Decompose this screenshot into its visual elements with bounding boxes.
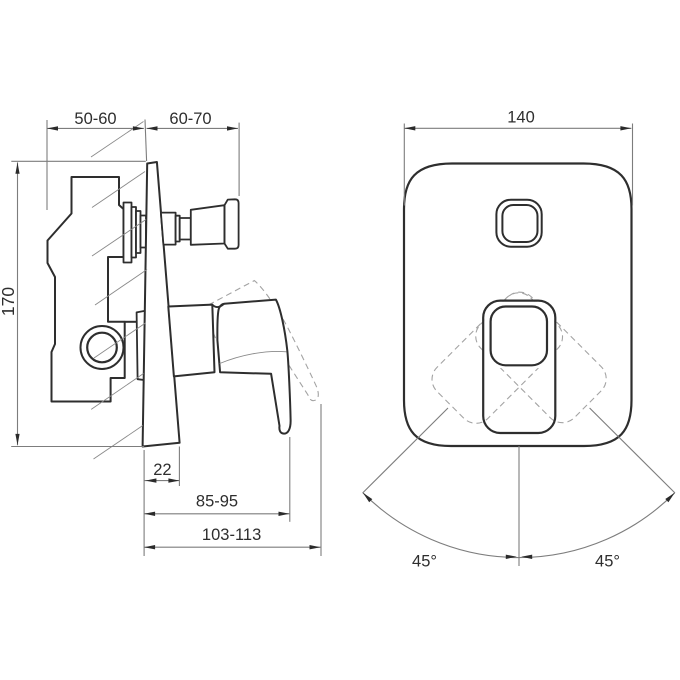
svg-text:50-60: 50-60 bbox=[74, 110, 116, 128]
svg-text:140: 140 bbox=[507, 109, 535, 127]
svg-text:85-95: 85-95 bbox=[196, 493, 238, 511]
svg-text:45°: 45° bbox=[595, 553, 620, 571]
svg-text:103-113: 103-113 bbox=[202, 526, 261, 544]
svg-text:22: 22 bbox=[153, 461, 171, 479]
svg-text:170: 170 bbox=[0, 287, 18, 316]
svg-text:45°: 45° bbox=[412, 553, 437, 571]
svg-text:60-70: 60-70 bbox=[169, 110, 211, 128]
